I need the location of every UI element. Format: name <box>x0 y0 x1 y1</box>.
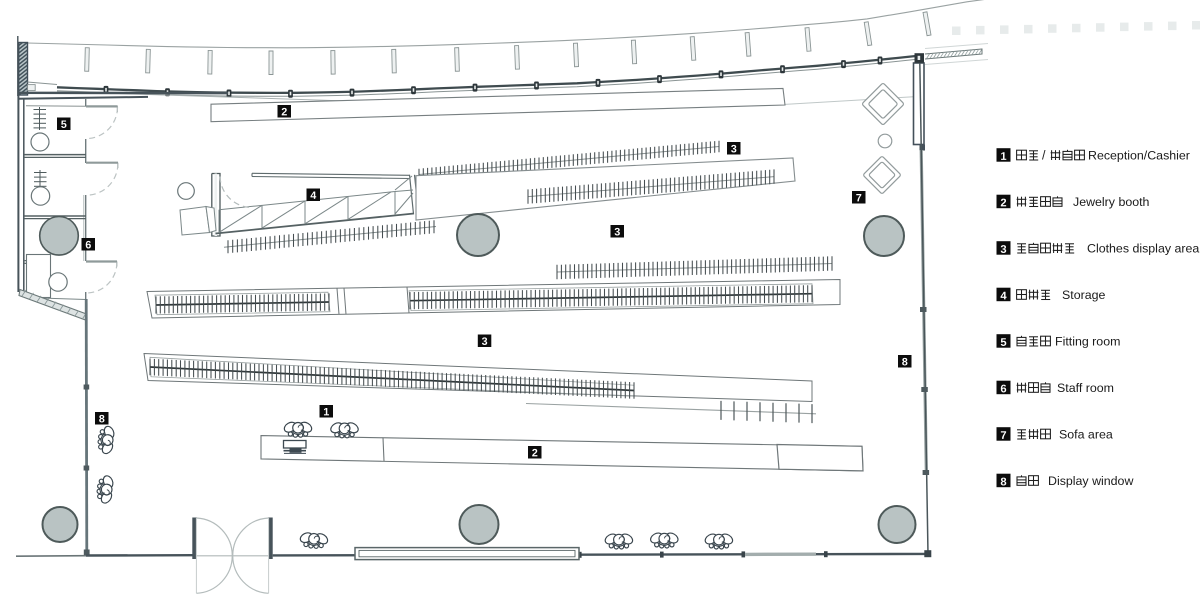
svg-text:Sofa area: Sofa area <box>1059 428 1113 442</box>
svg-text:Staff room: Staff room <box>1057 381 1114 395</box>
svg-text:Jewelry booth: Jewelry booth <box>1073 195 1150 209</box>
svg-text:Display window: Display window <box>1048 474 1133 488</box>
svg-text:/: / <box>1042 149 1046 163</box>
svg-text:Storage: Storage <box>1062 288 1106 302</box>
svg-text:Reception/Cashier: Reception/Cashier <box>1088 149 1190 163</box>
svg-text:Clothes display area: Clothes display area <box>1087 242 1199 256</box>
svg-text:Fitting room: Fitting room <box>1055 335 1120 349</box>
